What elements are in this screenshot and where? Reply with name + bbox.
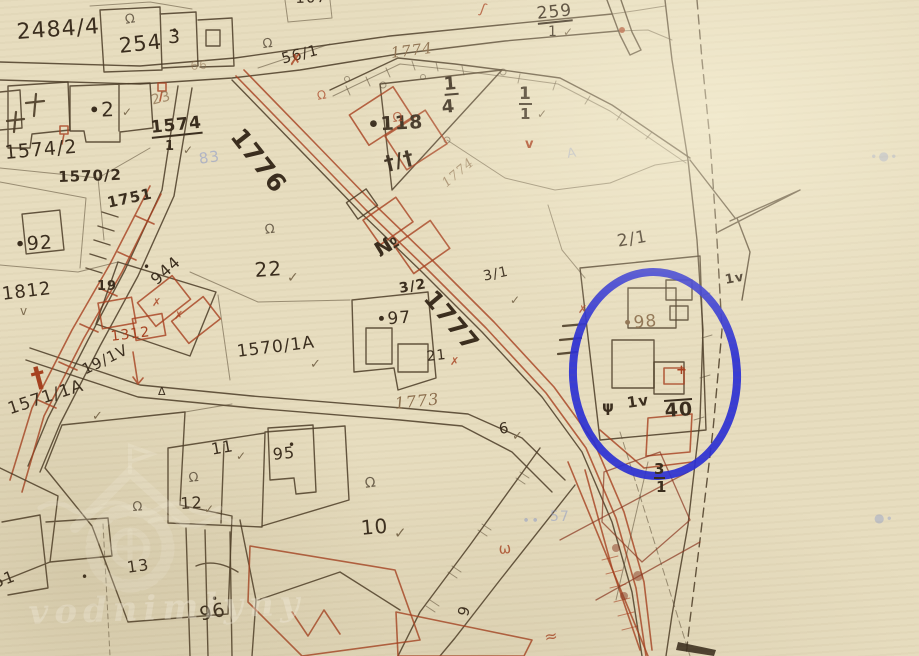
map-label: Ω (124, 12, 137, 27)
map-label: 19/1V (80, 343, 131, 378)
map-label: 1 (656, 480, 667, 495)
map-canvas: 2484/4253/22543•1072591✓56/1✗66177417741… (0, 0, 919, 656)
map-label: 83 (198, 149, 221, 167)
map-label: 1812 (1, 280, 53, 304)
map-label: 259 (536, 2, 573, 25)
map-label: 1 (443, 75, 458, 96)
map-label: 1574/2 (4, 138, 78, 163)
map-label: ✓ (310, 358, 322, 371)
map-label: 107 (295, 0, 327, 6)
map-label: • (143, 261, 151, 273)
map-label: •2 (88, 99, 115, 120)
map-label: 1774 (390, 41, 434, 61)
watermark-text: vodnimlyny (28, 586, 306, 630)
map-label: 11 (210, 438, 235, 458)
map-label: 254 (118, 31, 163, 56)
map-label: 12 (180, 495, 203, 512)
map-label: 1v (626, 393, 650, 411)
map-label: № (371, 230, 403, 260)
map-label: Ω (264, 222, 277, 236)
map-label: •92 (14, 233, 54, 255)
map-label: ✗ (174, 310, 184, 321)
map-label: • (171, 25, 179, 37)
map-label: ∙∙ (522, 514, 540, 527)
map-label: •98 (622, 313, 658, 333)
map-label: ✓ (512, 430, 524, 443)
map-label: 40 (664, 398, 694, 421)
map-label: ω (498, 541, 513, 557)
map-label: †/† (382, 147, 416, 174)
map-label: 1570/1A (236, 334, 316, 360)
map-label: ●∙ (874, 512, 894, 524)
map-label: ʃ (478, 2, 488, 17)
map-label: ≈ (543, 627, 560, 645)
map-label: † (28, 362, 50, 393)
map-label: 1 (519, 86, 532, 105)
map-label: 1312 (110, 325, 151, 344)
map-label: Ω (262, 37, 274, 51)
map-label: Ω (132, 500, 144, 514)
map-label: 1751 (106, 186, 154, 210)
map-label: ✓ (122, 106, 133, 118)
map-label: ✓ (183, 144, 194, 156)
map-label: 1 (548, 25, 558, 39)
map-label: 9 (456, 604, 473, 618)
map-label: 22 (254, 258, 283, 280)
map-label: 1774 (440, 156, 477, 190)
map-label: Δ (158, 386, 167, 397)
map-label: ✓ (563, 26, 574, 38)
map-label: 1776 (226, 124, 291, 197)
map-label: ✓ (236, 450, 247, 462)
map-label: •97 (376, 310, 412, 329)
map-label: ψ (602, 400, 615, 415)
map-label: ✗ (289, 52, 303, 68)
map-label: 19 (97, 280, 117, 293)
map-label: ✗ (578, 304, 588, 315)
map-label: ✓ (287, 271, 300, 285)
map-label: Ω (316, 88, 328, 102)
map-label: 4 (441, 98, 456, 117)
map-label: 944 (148, 254, 184, 288)
map-label: • (81, 571, 89, 583)
map-label: A (566, 146, 578, 161)
map-label: 21 (426, 348, 447, 364)
map-label: 1v (724, 271, 745, 287)
map-label: ✓ (204, 503, 215, 515)
map-label: 2484/4 (16, 16, 101, 44)
map-label: 1773 (394, 391, 440, 412)
map-label: 3 (654, 462, 665, 479)
map-label: • (288, 439, 296, 451)
map-labels-layer: 2484/4253/22543•1072591✓56/1✗66177417741… (0, 0, 919, 656)
map-label: Ω (188, 471, 200, 485)
map-label: 66 (190, 58, 208, 71)
map-label: 10 (360, 516, 389, 538)
map-label: Ω (364, 475, 378, 490)
map-label: 51 (0, 568, 17, 591)
map-label: 23 (150, 89, 173, 107)
map-label: ✗ (152, 297, 162, 308)
map-label: v (525, 138, 534, 151)
map-label: Ω (392, 111, 404, 125)
map-label: + (676, 364, 688, 377)
map-label: 1 (165, 140, 175, 153)
map-label: ✓ (92, 410, 104, 423)
map-label: 2/1 (616, 229, 649, 251)
map-label: 1 (520, 107, 531, 122)
map-label: 1777 (420, 286, 484, 356)
map-label: ✓ (510, 294, 521, 306)
map-label: ✓ (394, 526, 408, 541)
map-label: 6 (498, 421, 511, 437)
map-label: 1570/2 (58, 168, 122, 185)
map-label: v (20, 305, 28, 317)
map-label: 3/2 (398, 277, 428, 296)
map-label: ✗ (450, 356, 460, 367)
map-label: 57 (550, 510, 570, 524)
map-label: ✓ (537, 108, 548, 120)
map-label: 13 (126, 557, 150, 576)
map-label: 1574 (150, 115, 203, 139)
map-label: 253/2 (103, 0, 152, 3)
map-label: 3/1 (482, 265, 510, 284)
map-label: ∙●∙ (870, 150, 899, 162)
